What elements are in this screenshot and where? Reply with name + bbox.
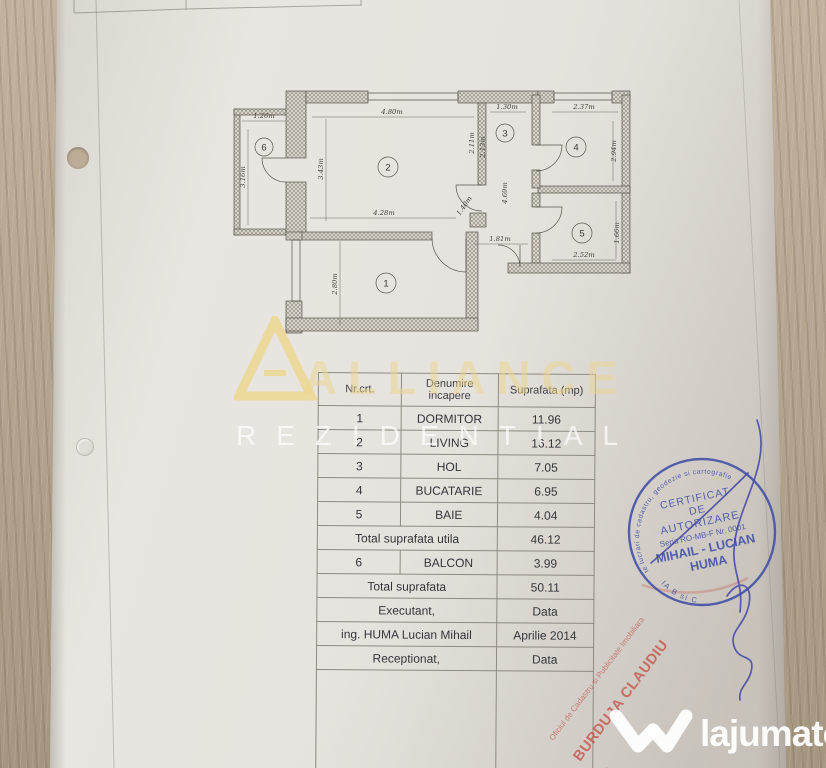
- room-number: 6: [261, 143, 266, 154]
- row-area: 6.95: [497, 479, 595, 504]
- dim-label: 1.26m: [253, 112, 275, 120]
- dim-label: 4.80m: [380, 108, 403, 116]
- punch-hole-mark: [76, 438, 94, 456]
- dim-label: 4.28m: [372, 209, 395, 217]
- table-row: 5 BAIE 4.04: [317, 502, 594, 528]
- row-nr: 5: [317, 502, 400, 527]
- engineer-name: ing. HUMA Lucian Mihail: [317, 621, 497, 646]
- dim-label: 1.81m: [489, 235, 511, 243]
- total-utila-row: Total suprafata utila 46.12: [317, 525, 594, 551]
- dim-label: 2.37m: [572, 103, 595, 111]
- signature-space-left: [316, 669, 496, 768]
- row-nr: 4: [318, 478, 401, 503]
- engineer-row: ing. HUMA Lucian Mihail Aprilie 2014: [317, 621, 594, 647]
- total-row: Total suprafata 50.11: [317, 573, 594, 599]
- photographed-floor-plan-document: 1.26m 3.16m 4.80m 3.43m 1.30m 2.11m 2.13…: [0, 0, 826, 768]
- dim-label: 2.94m: [610, 140, 618, 163]
- lajumate-w-icon: [606, 708, 694, 760]
- dim-label: 2.52m: [572, 251, 595, 259]
- row-name: HOL: [401, 454, 498, 479]
- room-number: 5: [579, 229, 584, 240]
- lajumate-site-name: lajumate: [700, 713, 826, 755]
- total-utila-value: 46.12: [497, 527, 595, 552]
- receptionat-data: Data: [496, 647, 594, 672]
- plan-doors: [262, 145, 562, 272]
- dim-label: 1.30m: [496, 103, 518, 111]
- row-area: 3.99: [497, 551, 595, 576]
- row-name: BALCON: [400, 550, 497, 575]
- paper-left-edge-shadow: [50, 0, 66, 768]
- room-number: 4: [573, 143, 578, 154]
- total-label: Total suprafata: [317, 573, 497, 598]
- dim-label: 2.13m: [479, 136, 487, 159]
- row-nr: 3: [318, 454, 401, 479]
- receptionat-row: Receptionat, Data: [316, 645, 593, 671]
- receptionat-label: Receptionat,: [316, 645, 496, 670]
- room-number: 3: [502, 129, 507, 140]
- dim-label: 3.16m: [239, 166, 247, 188]
- paper-right-edge-shadow: [758, 0, 786, 768]
- total-value: 50.11: [496, 575, 594, 600]
- row-nr: 6: [317, 549, 400, 574]
- executant-row: Executant, Data: [317, 597, 594, 623]
- row-area: 7.05: [497, 455, 595, 480]
- signature-space-row: [316, 669, 594, 768]
- lajumate-watermark: lajumate.ro: [606, 708, 826, 760]
- row-name: BAIE: [400, 502, 497, 527]
- dim-label: 2.11m: [468, 132, 476, 155]
- alliance-watermark-text: ALLIANCE: [303, 350, 629, 405]
- total-utila-label: Total suprafata utila: [317, 525, 497, 550]
- rezidential-watermark-text: REZIDENTIAL: [236, 420, 638, 452]
- table-row: 3 HOL 7.05: [318, 454, 595, 480]
- table-row: 4 BUCATARIE 6.95: [318, 478, 595, 504]
- plan-walls: [234, 91, 630, 333]
- engineer-date: Aprilie 2014: [496, 623, 594, 648]
- room-number: 1: [383, 279, 388, 290]
- row-area: 4.04: [497, 503, 595, 528]
- row-name: BUCATARIE: [401, 478, 498, 503]
- balcon-row: 6 BALCON 3.99: [317, 549, 594, 575]
- executant-data: Data: [496, 599, 594, 624]
- executant-label: Executant,: [317, 597, 497, 622]
- room-number: 2: [385, 163, 390, 174]
- dim-label: 3.43m: [317, 158, 325, 180]
- floor-plan-drawing: 1.26m 3.16m 4.80m 3.43m 1.30m 2.11m 2.13…: [220, 85, 640, 350]
- dim-label: 4.69m: [501, 182, 509, 205]
- dim-label: 1.66m: [613, 222, 621, 244]
- punch-hole: [67, 147, 89, 169]
- signature-space-right: [495, 671, 593, 768]
- dim-label: 2.80m: [331, 273, 339, 296]
